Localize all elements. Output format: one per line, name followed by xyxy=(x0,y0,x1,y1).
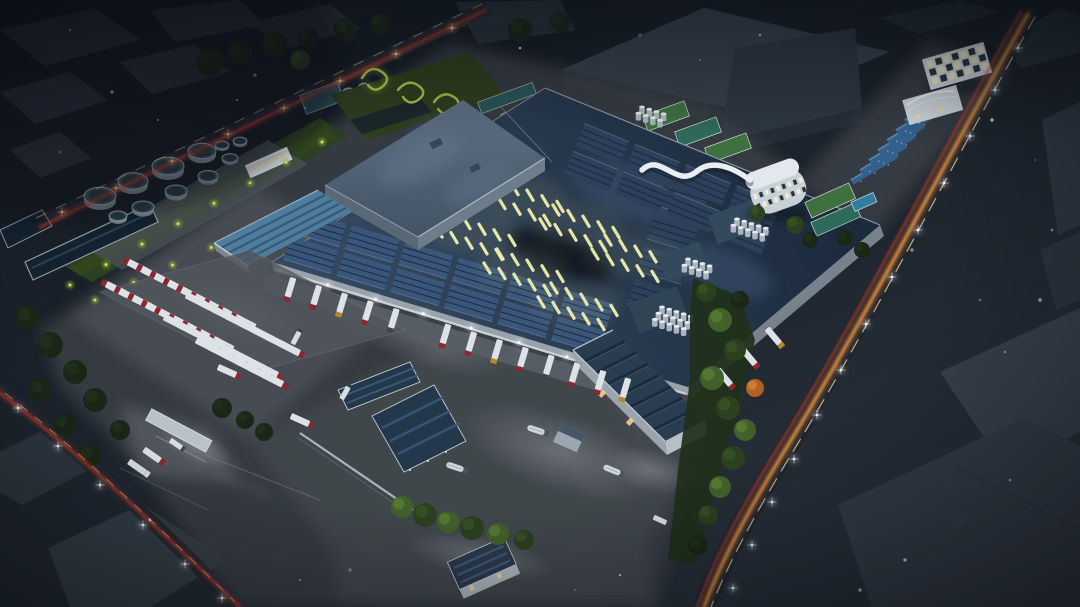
atmosphere xyxy=(0,0,1080,607)
vignette xyxy=(0,0,1080,607)
screenshot-canvas: Aerial night rendering of an industrial … xyxy=(0,0,1080,607)
rendering-svg: Aerial night rendering of an industrial … xyxy=(0,0,1080,607)
